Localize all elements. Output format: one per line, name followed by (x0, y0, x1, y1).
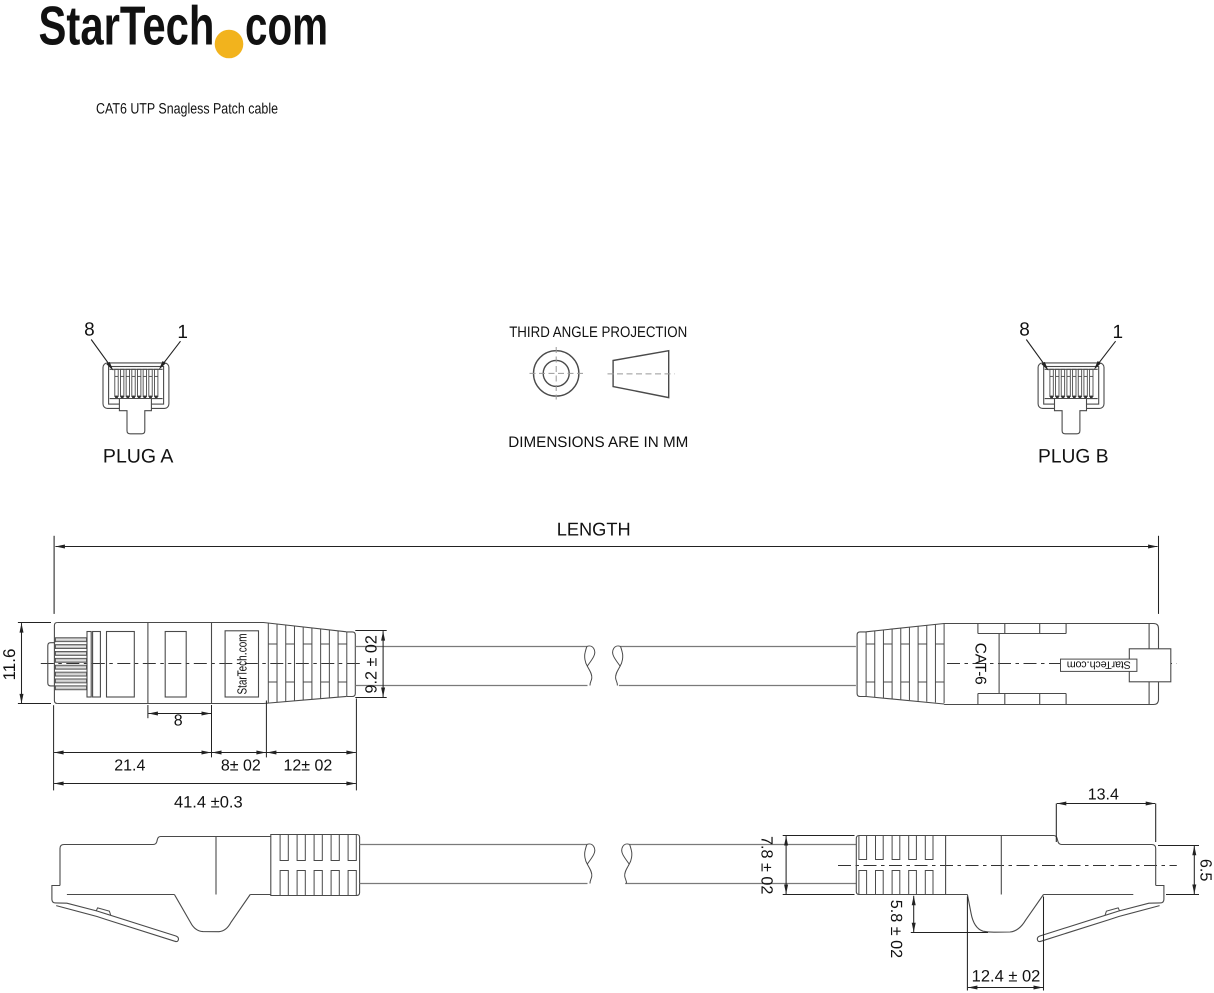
svg-text:13.4: 13.4 (1088, 787, 1119, 804)
svg-text:PLUG B: PLUG B (1038, 445, 1109, 467)
svg-text:com: com (245, 0, 328, 57)
svg-text:41.4 ±0.3: 41.4 ±0.3 (174, 794, 243, 812)
svg-text:8: 8 (84, 320, 95, 341)
svg-text:7.8 ± 02: 7.8 ± 02 (758, 836, 776, 894)
svg-text:LENGTH: LENGTH (557, 518, 631, 539)
svg-text:DIMENSIONS ARE IN MM: DIMENSIONS ARE IN MM (508, 434, 688, 451)
svg-text:1: 1 (177, 322, 188, 343)
svg-text:8: 8 (1019, 320, 1030, 341)
svg-text:12.4 ± 02: 12.4 ± 02 (972, 967, 1041, 985)
svg-text:StarTech: StarTech (39, 0, 215, 57)
svg-text:THIRD ANGLE PROJECTION: THIRD ANGLE PROJECTION (509, 324, 687, 341)
svg-text:CAT6 UTP Snagless Patch cable: CAT6 UTP Snagless Patch cable (96, 101, 278, 118)
svg-text:PLUG A: PLUG A (103, 445, 174, 467)
svg-text:11.6: 11.6 (0, 649, 19, 681)
svg-text:9.2 ± 02: 9.2 ± 02 (362, 635, 380, 693)
svg-text:8: 8 (174, 713, 183, 730)
svg-text:CAT-6: CAT-6 (971, 643, 988, 685)
svg-text:6.5: 6.5 (1197, 859, 1214, 882)
svg-text:8± 02: 8± 02 (221, 758, 261, 775)
svg-text:StarTech.com: StarTech.com (1067, 658, 1131, 672)
svg-text:12± 02: 12± 02 (283, 758, 332, 775)
svg-text:5.8 ± 02: 5.8 ± 02 (887, 900, 905, 958)
svg-text:1: 1 (1113, 322, 1124, 343)
svg-text:21.4: 21.4 (114, 758, 145, 775)
svg-text:StarTech.com: StarTech.com (233, 633, 250, 694)
